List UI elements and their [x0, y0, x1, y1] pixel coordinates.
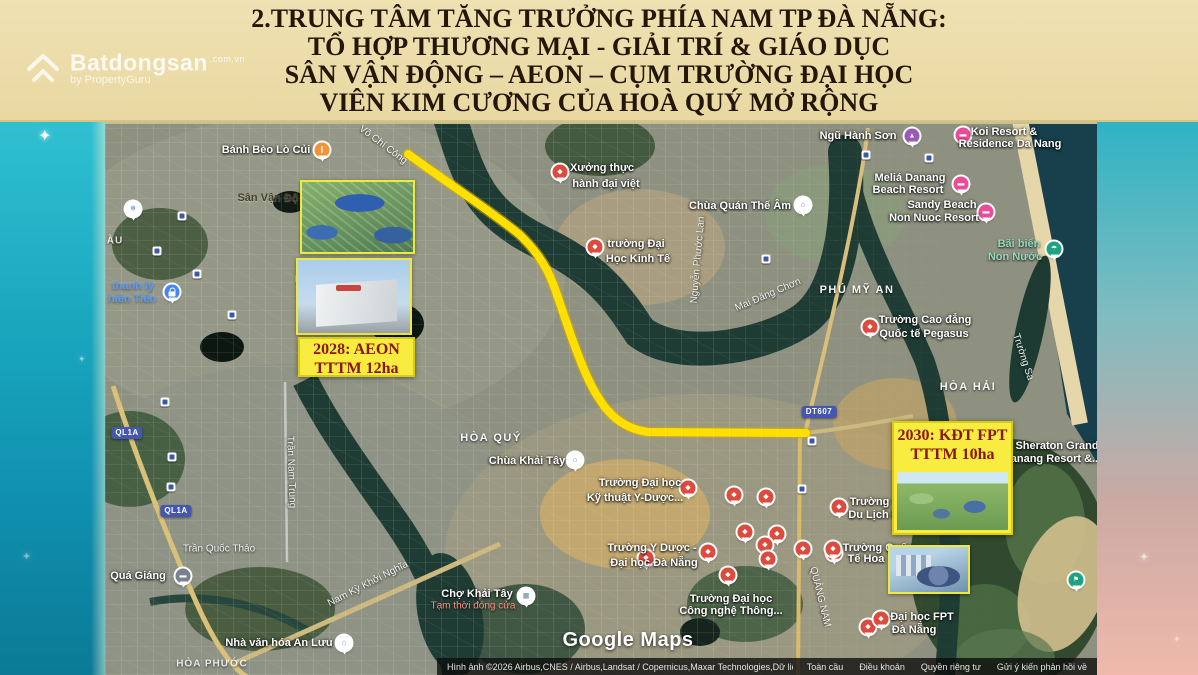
- sparkle-icon: [1139, 550, 1149, 564]
- slide-title-line-1: 2.TRUNG TÂM TĂNG TRƯỞNG PHÍA NAM TP ĐÀ N…: [0, 5, 1198, 33]
- aeon-callout-line-1: 2028: AEON: [300, 340, 413, 359]
- stadium-render-photo: [300, 180, 415, 254]
- imagery-attribution: Hình ảnh ©2026 Airbus,CNES / Airbus,Land…: [447, 662, 793, 672]
- attribution-bar: Hình ảnh ©2026 Airbus,CNES / Airbus,Land…: [437, 658, 1097, 675]
- sparkle-icon: [1173, 634, 1181, 645]
- fpt-callout-line-1: 2030: KĐT FPT: [894, 426, 1011, 445]
- slide-header: Batdongsan.com.vn by PropertyGuru 2.TRUN…: [0, 0, 1198, 122]
- attribution-link[interactable]: Điều khoản: [859, 662, 905, 672]
- aeon-callout-line-2: TTTM 12ha: [300, 359, 413, 378]
- attribution-links: Toàn cầuĐiều khoảnQuyền riêng tưGửi ý ki…: [807, 662, 1087, 672]
- aeon-callout: 2028: AEON TTTM 12ha: [298, 337, 415, 377]
- attribution-link[interactable]: Toàn cầu: [807, 662, 844, 672]
- slide-title-line-2: TỔ HỢP THƯƠNG MẠI - GIẢI TRÍ & GIÁO DỤC: [0, 33, 1198, 61]
- sparkle-icon: [22, 550, 31, 563]
- fpt-towers-photo: [888, 545, 970, 594]
- fpt-callout: 2030: KĐT FPT TTTM 10ha: [892, 421, 1013, 535]
- fpt-callout-line-2: TTTM 10ha: [894, 445, 1011, 464]
- aeon-sign-shape: [336, 285, 361, 292]
- screenshot-root: Batdongsan.com.vn by PropertyGuru 2.TRUN…: [0, 0, 1198, 675]
- sparkle-icon: [38, 126, 51, 146]
- attribution-link[interactable]: Quyền riêng tư: [921, 662, 981, 672]
- attribution-link[interactable]: Gửi ý kiến phản hồi về: [997, 662, 1087, 672]
- sparkle-icon: [78, 354, 86, 365]
- background-left-strip: [0, 122, 105, 675]
- fpt-render-photo: [897, 472, 1008, 530]
- slide-title: 2.TRUNG TÂM TĂNG TRƯỞNG PHÍA NAM TP ĐÀ N…: [0, 5, 1198, 117]
- aeon-mall-photo: [296, 258, 412, 335]
- slide-title-line-4: VIÊN KIM CƯƠNG CỦA HOÀ QUÝ MỞ RỘNG: [0, 89, 1198, 117]
- background-right-strip: [1097, 122, 1198, 675]
- slide-title-line-3: SÂN VẬN ĐỘNG – AEON – CỤM TRƯỜNG ĐẠI HỌC: [0, 61, 1198, 89]
- satellite-map[interactable]: 2028: AEON TTTM 12ha 2030: KĐT FPT TTTM …: [105, 122, 1097, 675]
- google-maps-watermark: Google Maps: [562, 629, 693, 652]
